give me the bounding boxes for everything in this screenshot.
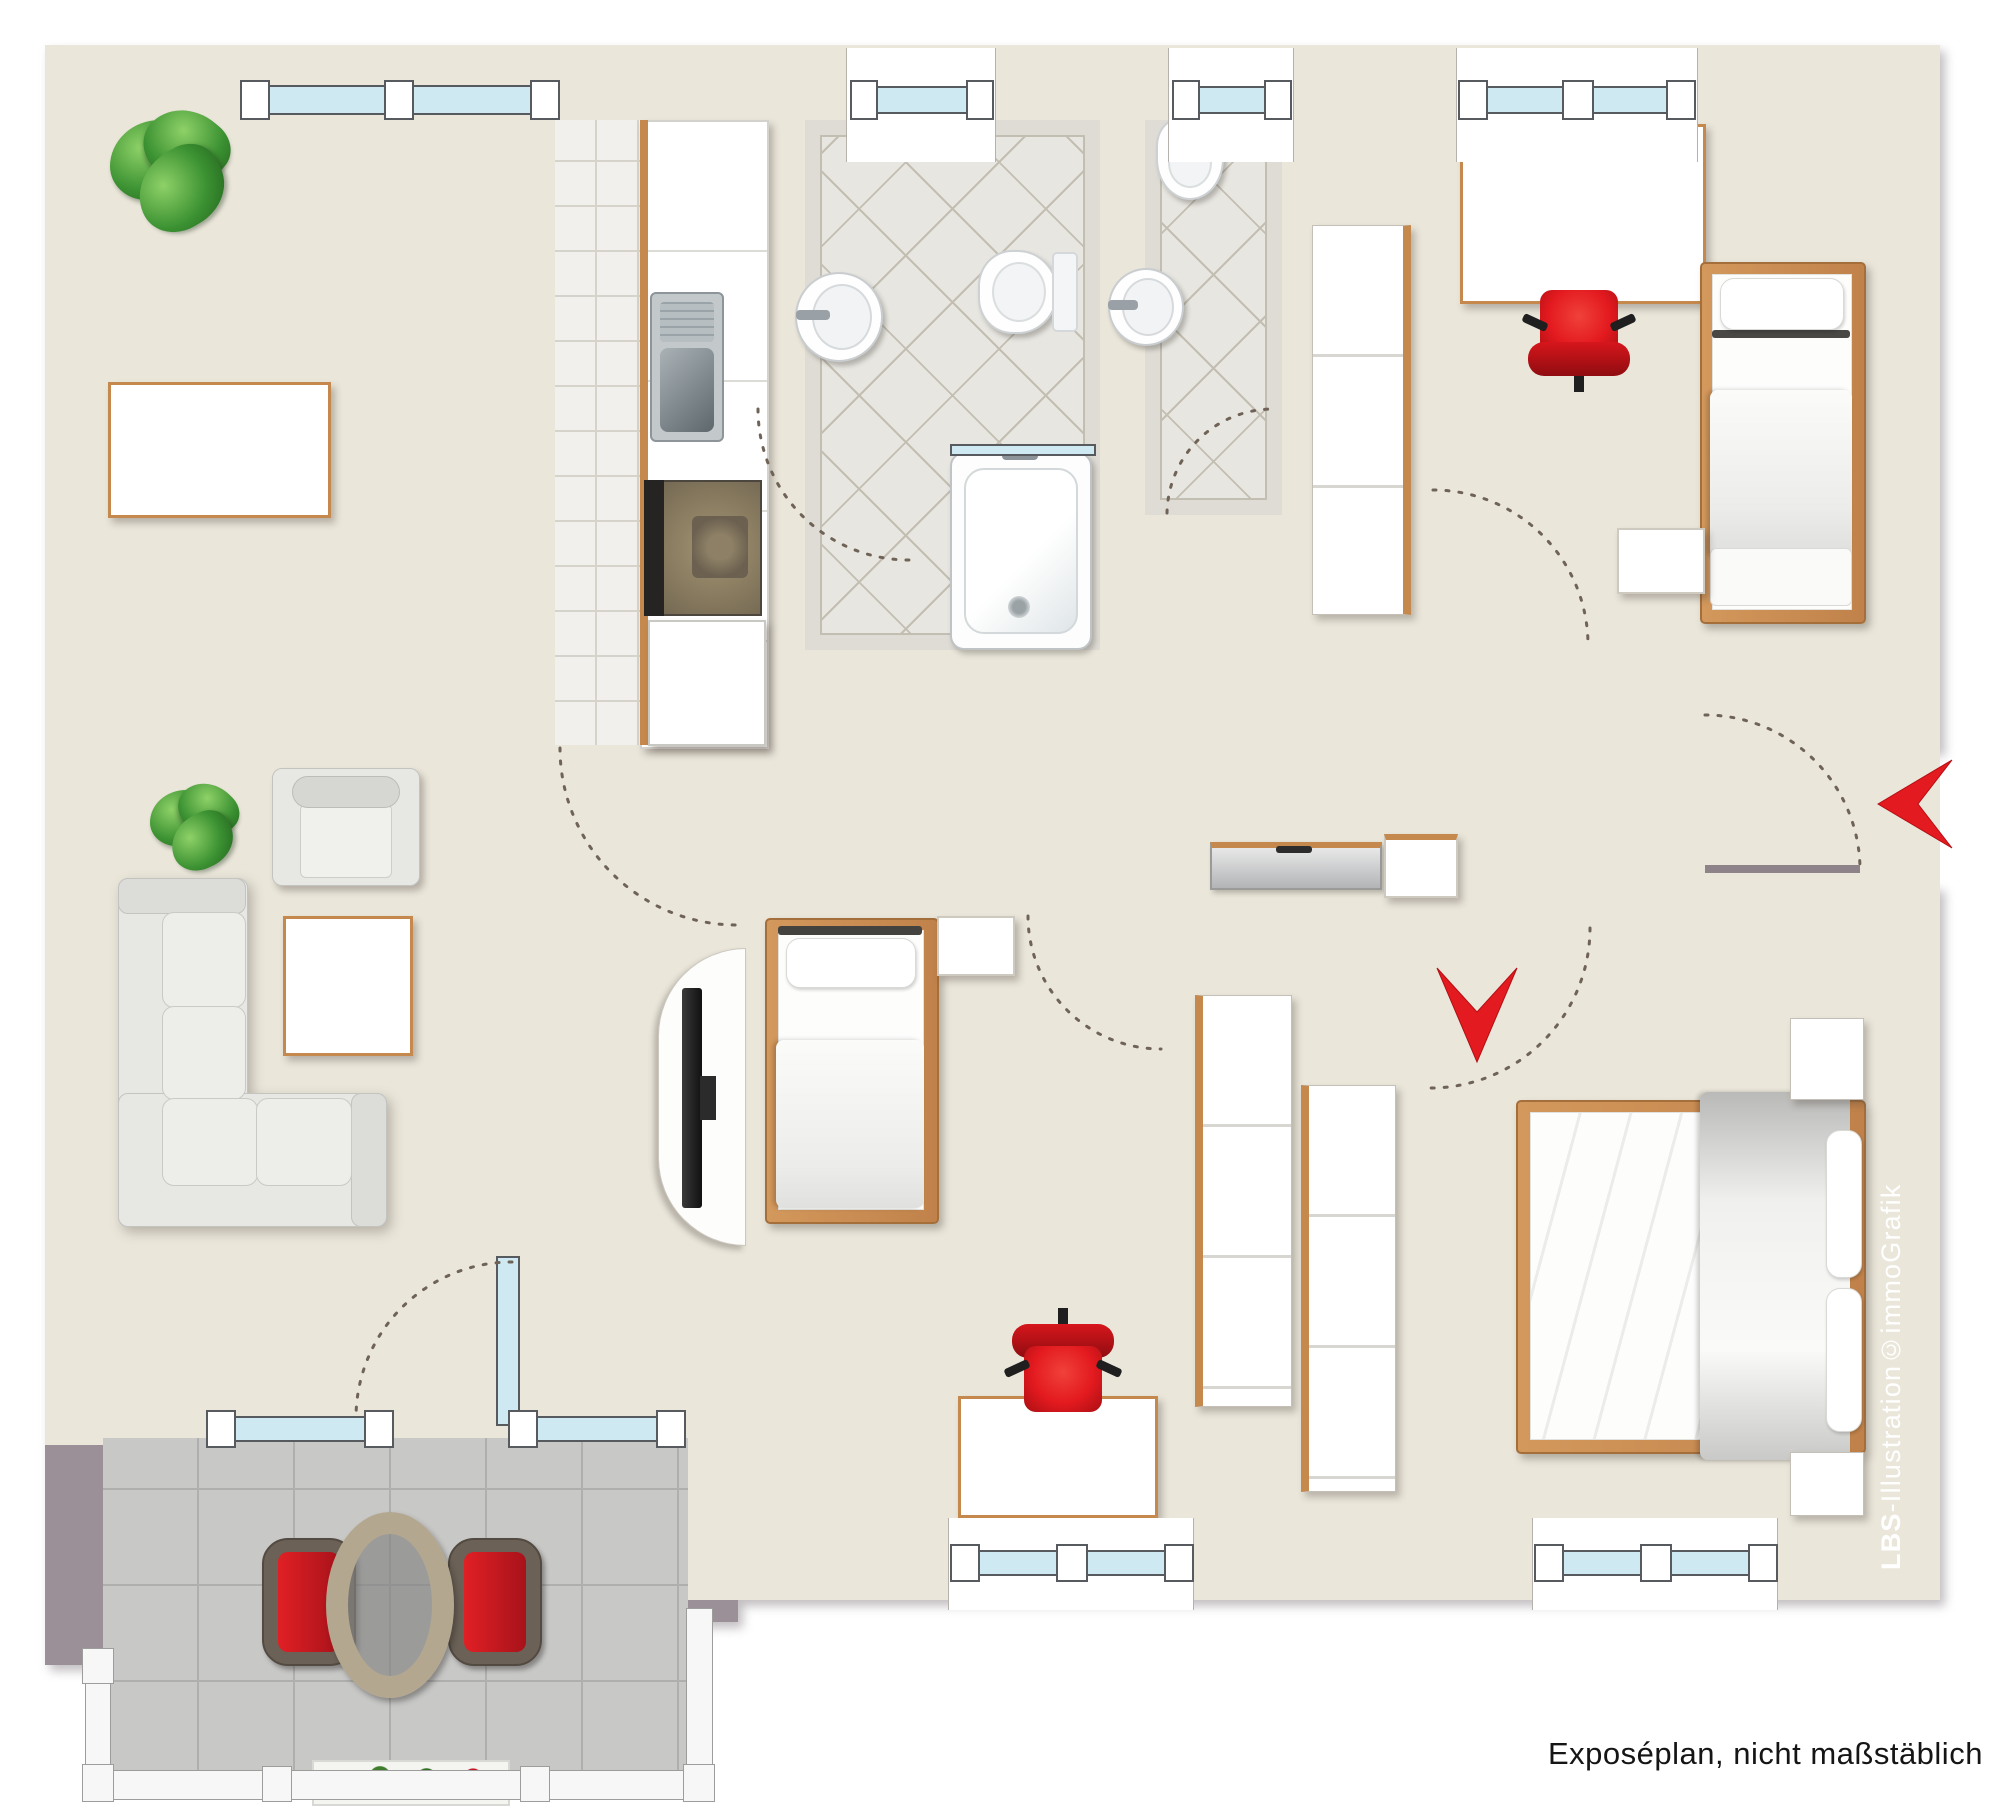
door-arc-wc (1167, 409, 1273, 513)
door-arc-bathroom (758, 409, 909, 560)
watermark-text: LBS-Illustration©immoGrafik (1876, 1150, 1907, 1570)
door-arc-bedroom1 (1433, 490, 1588, 645)
door-arc-balcony (356, 1262, 512, 1418)
watermark-bold: LBS (1876, 1512, 1906, 1570)
door-arc-entrance (1705, 715, 1860, 870)
master-entry-arrow-icon (1437, 968, 1517, 1062)
door-arc-bedroom2 (1028, 916, 1161, 1049)
door-arc-kitchen (560, 748, 737, 925)
floorplan-page: { "annotations": { "disclaimer": "Exposé… (0, 0, 2000, 1811)
watermark-rest: -Illustration©immoGrafik (1876, 1184, 1906, 1513)
entrance-arrow-icon (1878, 760, 1952, 848)
disclaimer-text: Exposéplan, nicht maßstäblich (1548, 1736, 1983, 1772)
doors-and-arrows-overlay (0, 0, 2000, 1811)
